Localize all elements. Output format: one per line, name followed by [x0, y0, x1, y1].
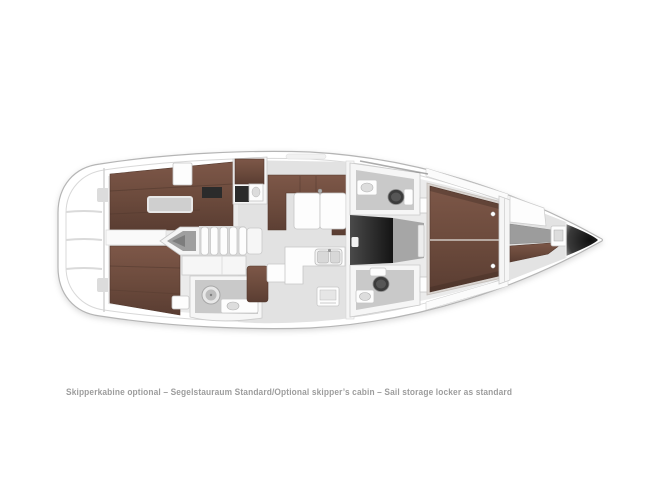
berth-step [148, 197, 192, 212]
wardrobe [173, 163, 192, 185]
sink-icon [318, 251, 329, 263]
yacht-floor-plan [0, 0, 667, 500]
latch-icon [491, 212, 495, 216]
locker-dark [202, 187, 222, 198]
landing [247, 228, 262, 254]
handle-icon [352, 237, 359, 247]
sink-icon [361, 183, 373, 192]
cabin-door [418, 225, 424, 257]
chart-table [267, 264, 287, 282]
sail-storage-locker [510, 196, 567, 280]
nav-seat [247, 266, 268, 302]
aft-cabin-port [110, 162, 233, 230]
berth-step [172, 296, 189, 309]
sink-icon [360, 293, 371, 301]
skipper-berth [510, 196, 546, 226]
faucet-icon [328, 249, 331, 252]
cabinet-under-stairs [182, 256, 246, 275]
mast-icon [318, 189, 322, 193]
aft-head-port [233, 157, 267, 204]
cistern [404, 189, 413, 205]
stairs-treads [201, 227, 247, 255]
caption: Skipperkabine optional – Segelstauraum S… [66, 387, 512, 399]
forward-bulkhead [499, 196, 510, 284]
yacht-floorplan-image: Skipperkabine optional – Segelstauraum S… [0, 0, 667, 500]
aft-cabin-starboard [110, 246, 189, 315]
saloon-table [294, 189, 346, 229]
latch-icon [491, 264, 495, 268]
cistern [370, 268, 386, 276]
corridor [350, 215, 424, 265]
sink-icon [227, 302, 239, 310]
